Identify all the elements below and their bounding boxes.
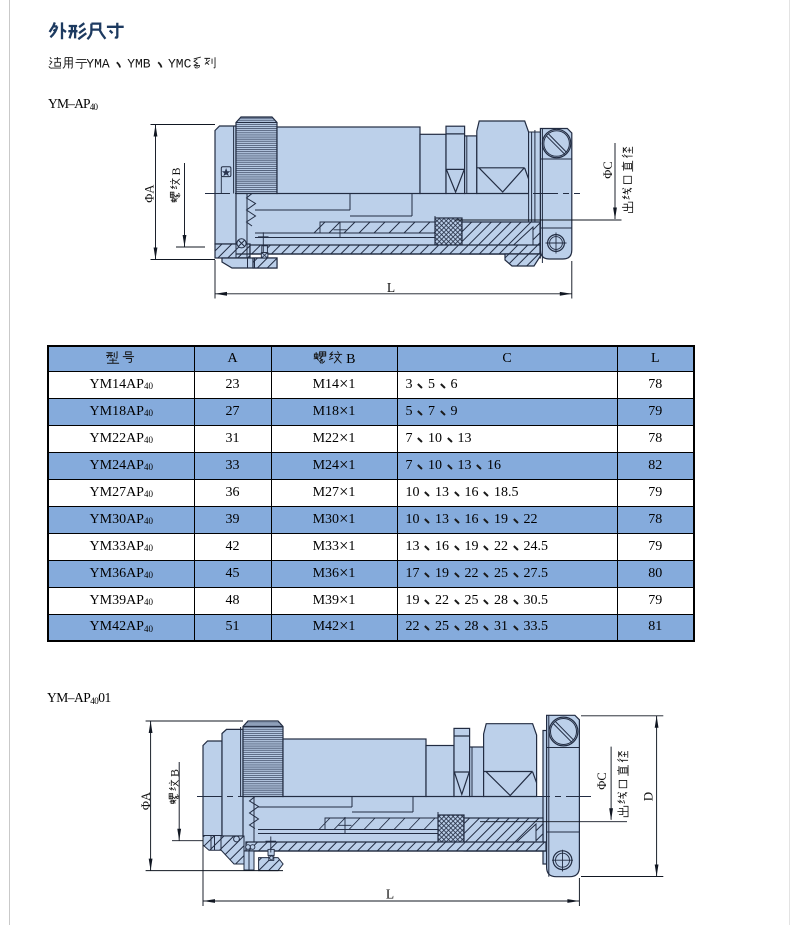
- svg-text:ΦA: ΦA: [139, 792, 153, 810]
- svg-text:ΦA: ΦA: [142, 185, 156, 203]
- svg-text:B: B: [168, 769, 182, 777]
- svg-text:D: D: [641, 792, 656, 801]
- svg-text:ΦC: ΦC: [601, 161, 615, 178]
- svg-text:L: L: [386, 887, 394, 902]
- svg-text:B: B: [169, 167, 183, 175]
- svg-text:L: L: [387, 280, 395, 295]
- svg-text:ΦC: ΦC: [595, 772, 609, 789]
